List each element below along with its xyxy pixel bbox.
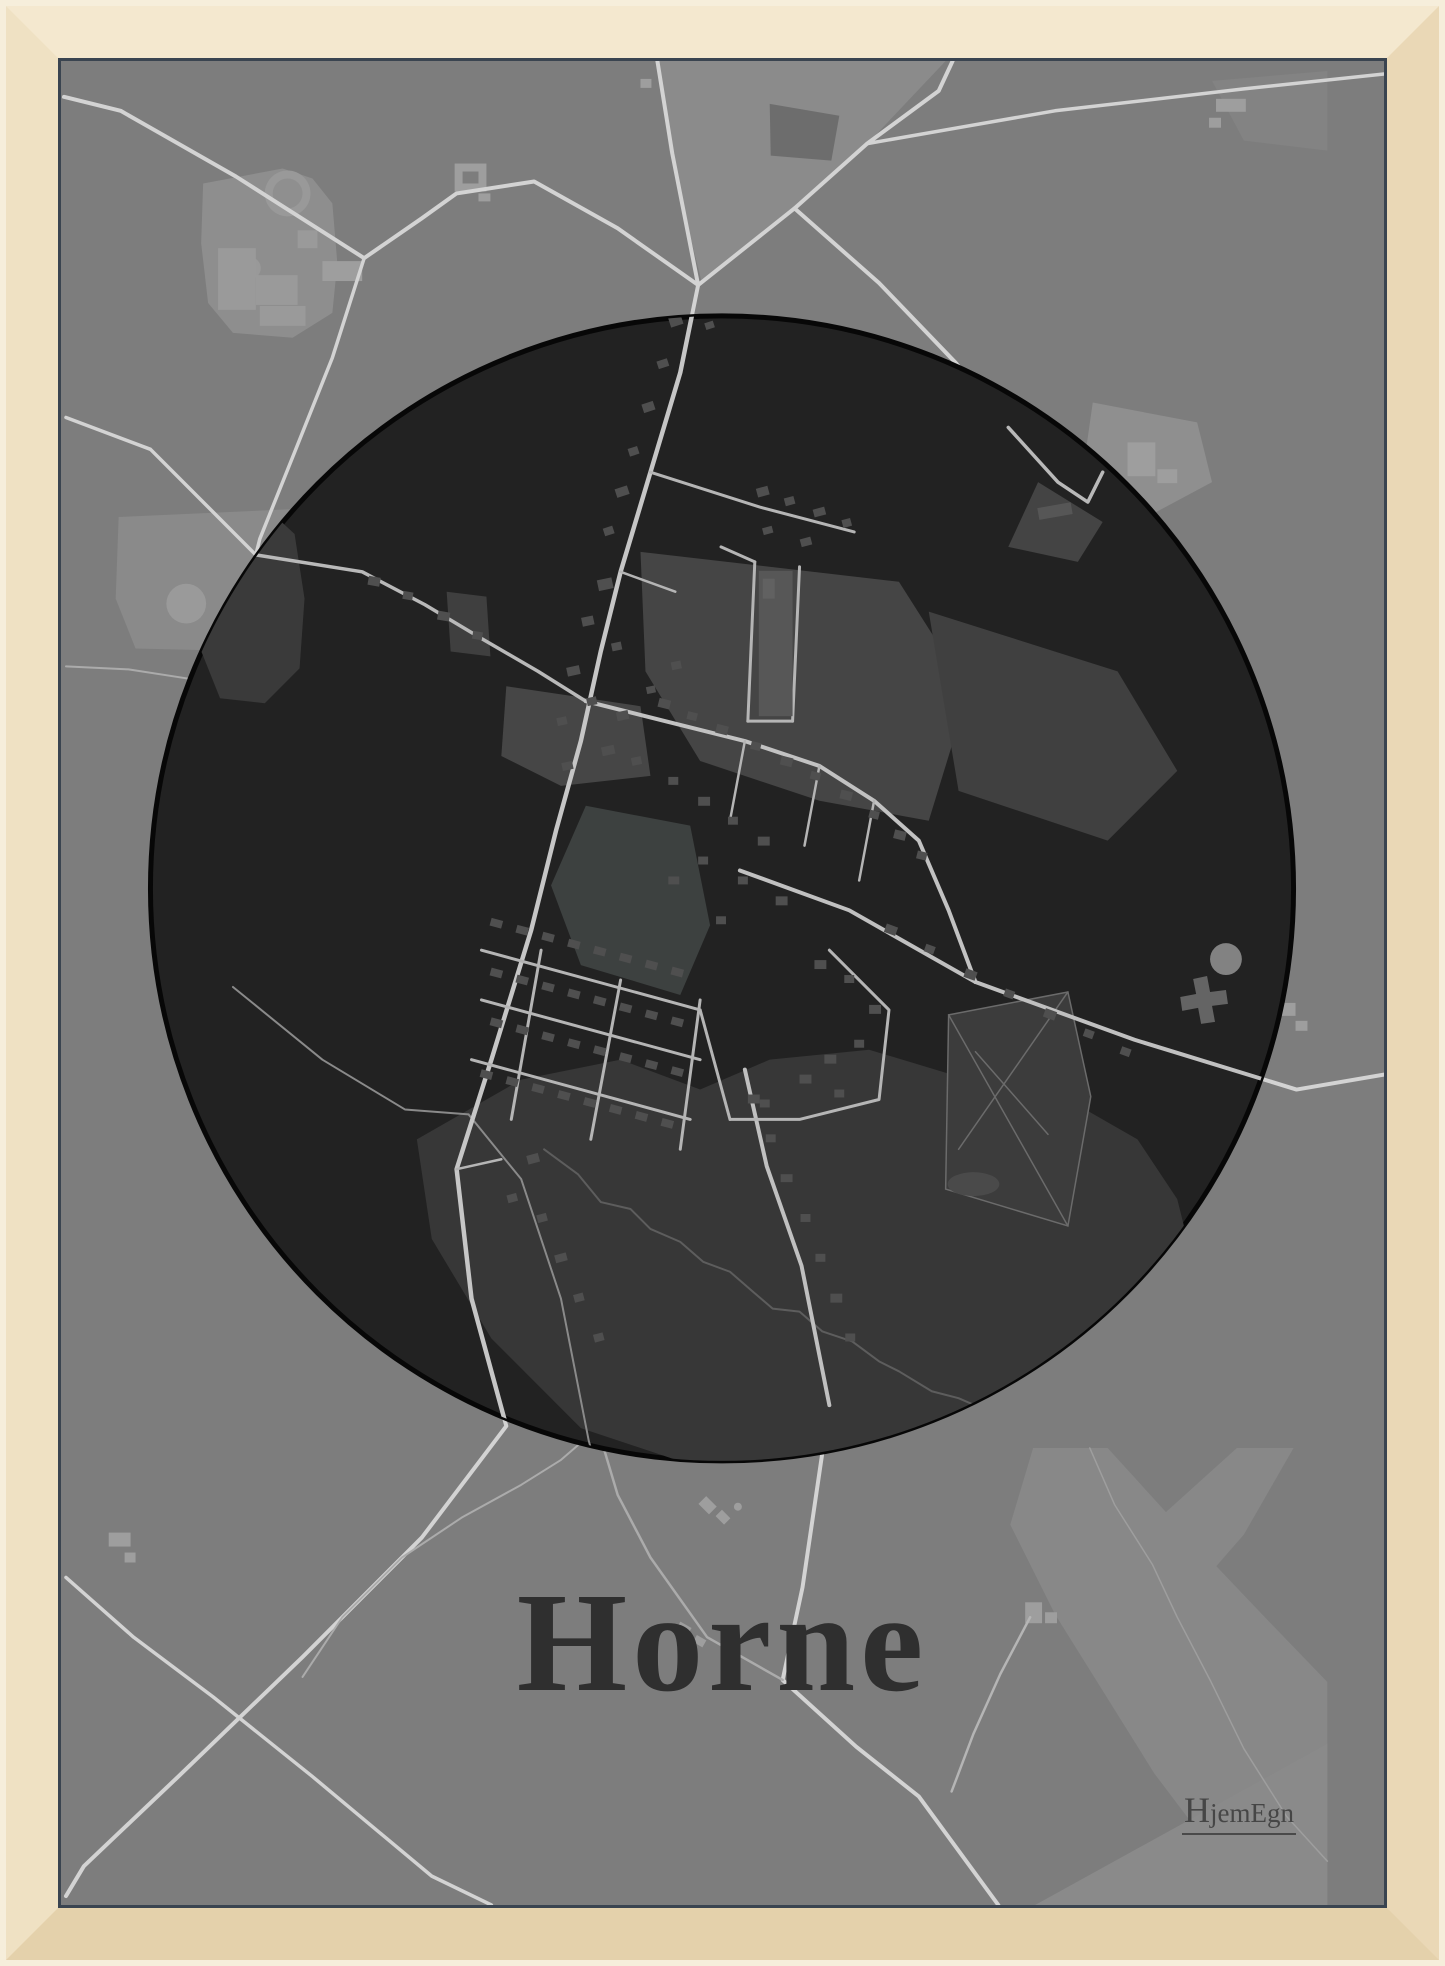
village-pond-dot xyxy=(1210,943,1242,975)
frame-outer-rim: Horne HjemEgn xyxy=(0,0,1445,1966)
brand-logo-rest: jemEgn xyxy=(1210,1798,1294,1828)
sports-pond xyxy=(948,1172,1000,1196)
map-poster: Horne HjemEgn xyxy=(58,58,1387,1908)
brand-logo: HjemEgn xyxy=(1182,1789,1296,1835)
place-title: Horne xyxy=(61,1571,1384,1713)
picture-frame: Horne HjemEgn xyxy=(6,6,1439,1960)
brand-logo-initial: H xyxy=(1184,1790,1210,1830)
